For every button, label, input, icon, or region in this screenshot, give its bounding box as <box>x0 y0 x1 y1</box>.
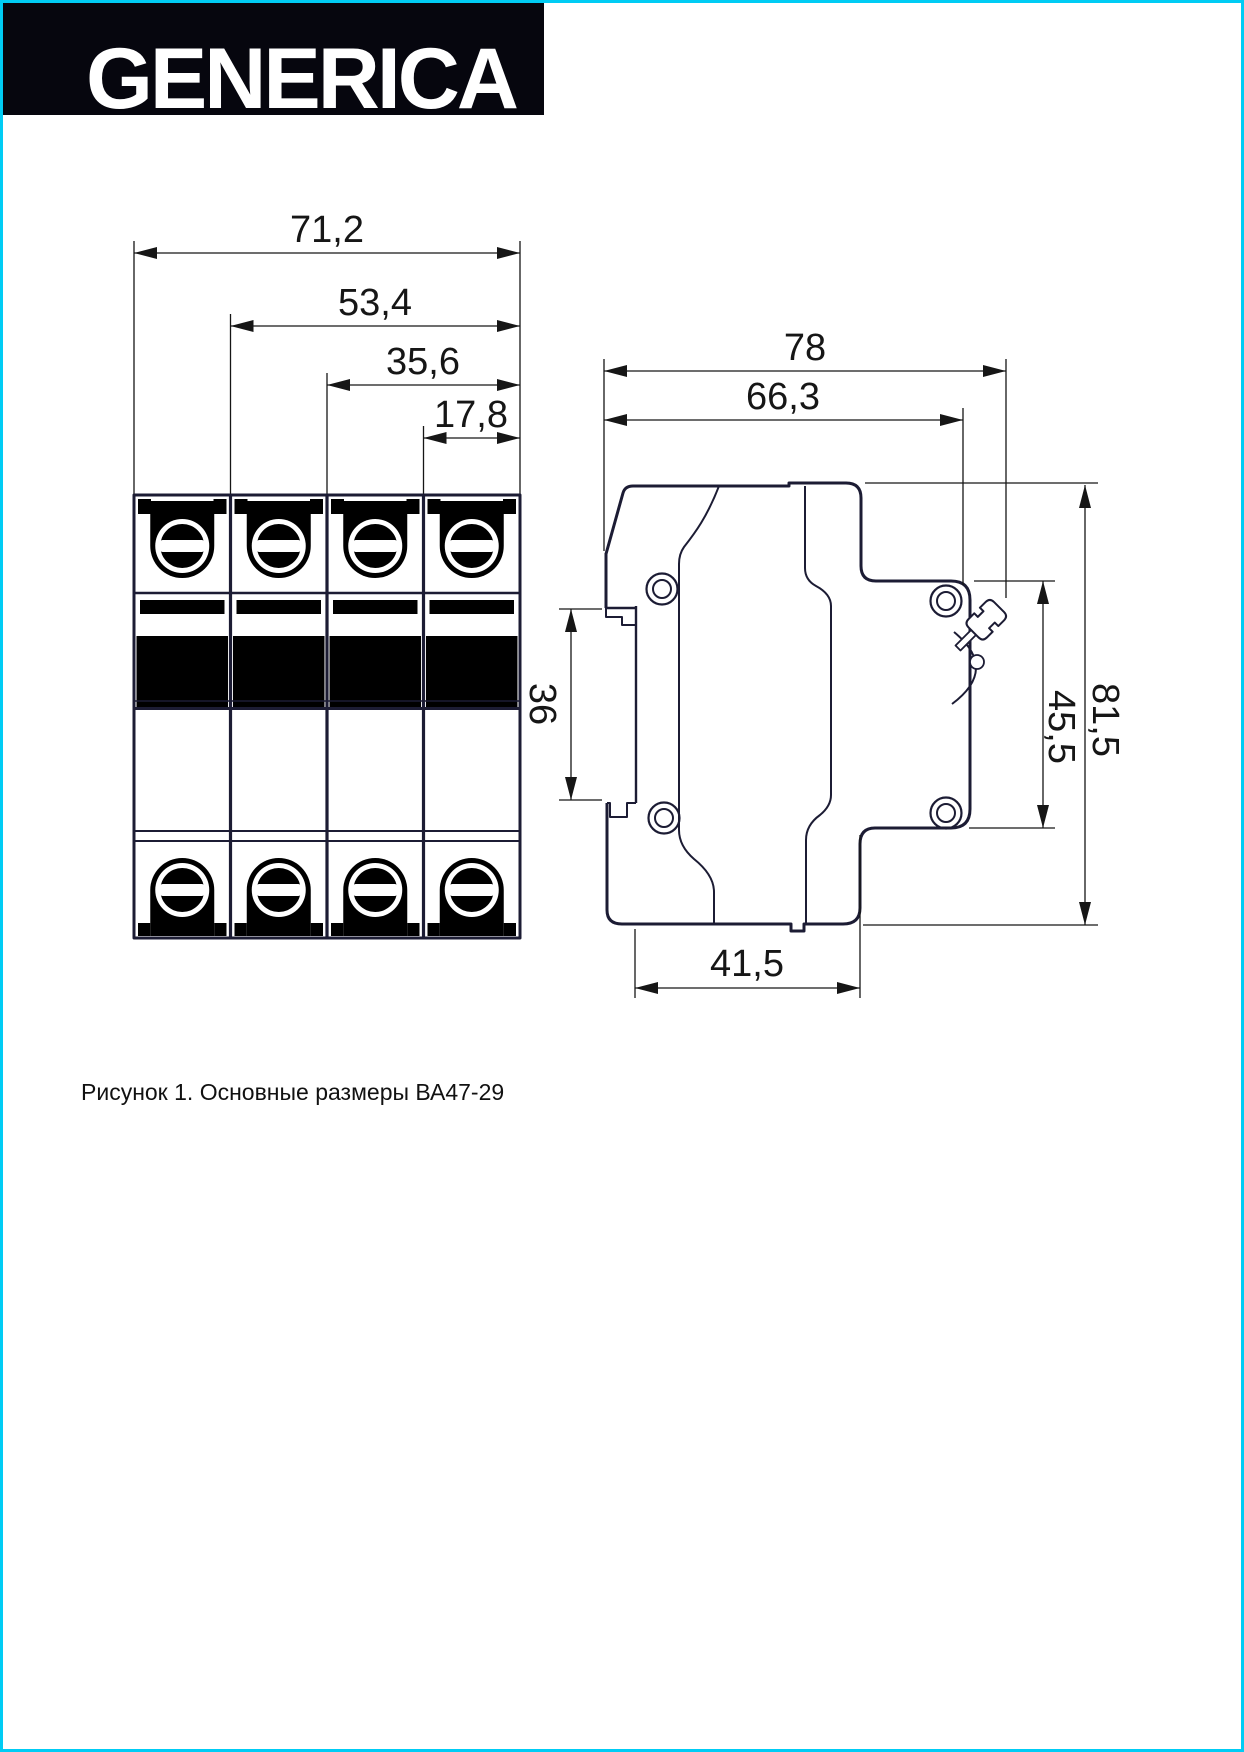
document-page: GENERICA <box>0 0 1244 1752</box>
dim-label-side-total-depth: 78 <box>784 327 826 369</box>
dim-label-front-three-pole-width: 53,4 <box>338 282 412 324</box>
dim-label-side-total-height: 81,5 <box>1084 683 1126 757</box>
figure-caption: Рисунок 1. Основные размеры ВА47-29 <box>81 1079 504 1106</box>
dim-label-front-total-width: 71,2 <box>290 209 364 251</box>
side-view-body <box>606 483 970 931</box>
dim-label-side-base-depth: 41,5 <box>710 943 784 985</box>
front-view-dimensions: 71,2 53,4 35,6 17,8 <box>134 209 520 494</box>
front-view <box>134 495 520 938</box>
dim-label-front-one-pole-width: 17,8 <box>434 394 508 436</box>
case-seam-left <box>679 486 719 924</box>
side-view <box>606 483 1008 931</box>
side-view-dimensions: 78 66,3 36 45,5 81, <box>521 327 1126 998</box>
technical-drawing: 71,2 53,4 35,6 17,8 <box>3 3 1244 1752</box>
dim-label-front-two-pole-width: 35,6 <box>386 341 460 383</box>
dim-label-side-front-height: 45,5 <box>1040 690 1082 764</box>
toggle-lever <box>949 598 1008 704</box>
case-seam-right <box>805 486 831 924</box>
dim-label-side-body-depth: 66,3 <box>746 376 820 418</box>
din-rail-recess <box>606 606 636 817</box>
dim-label-din-rail-height: 36 <box>521 683 563 725</box>
screw-boss-icons <box>647 574 962 834</box>
